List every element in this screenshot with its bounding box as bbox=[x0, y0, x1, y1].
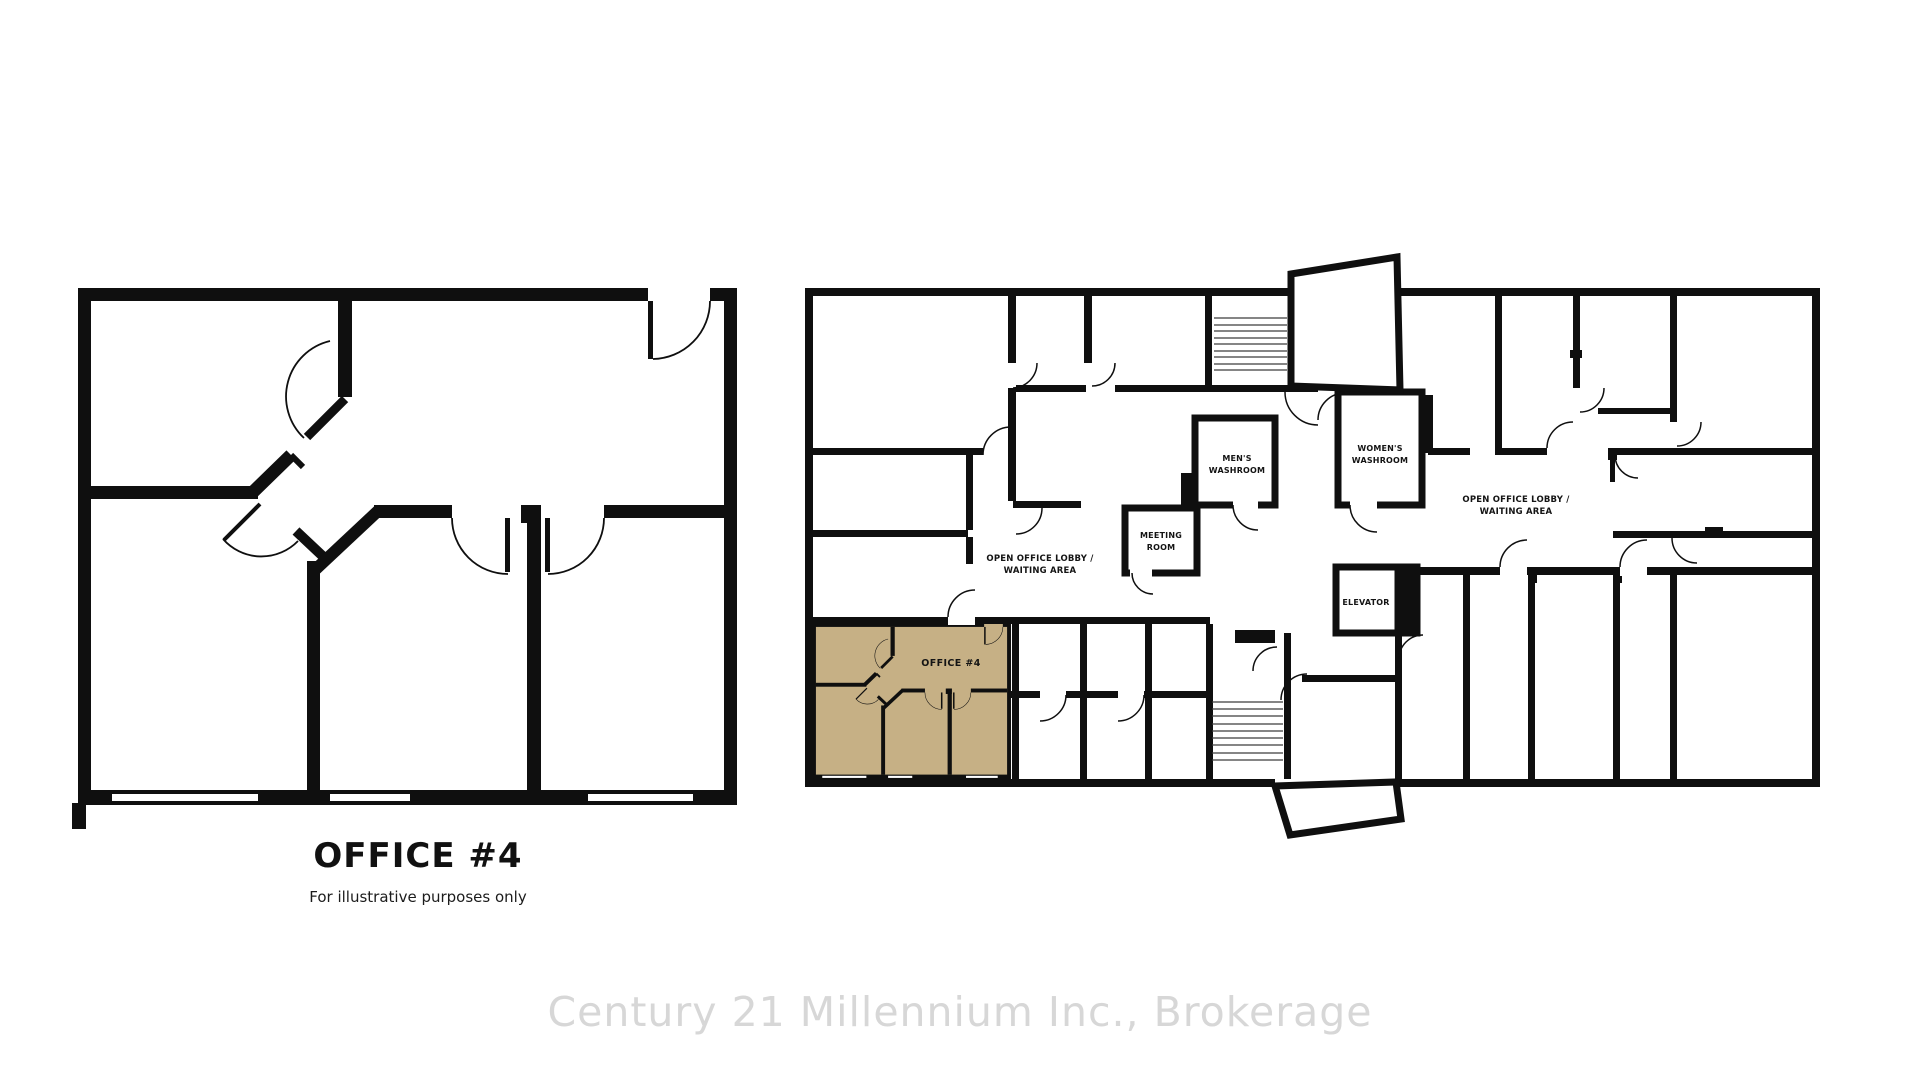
open-office-right-label-1: OPEN OFFICE LOBBY / bbox=[1462, 495, 1570, 505]
door-arc-corridor bbox=[1615, 455, 1638, 478]
office4-unit-plan bbox=[60, 280, 750, 835]
wall-h7 bbox=[1302, 675, 1396, 682]
wall-band-v2 bbox=[1080, 624, 1087, 779]
building-floor-plan: MEN'S WASHROOM WOMEN'S WASHROOM MEETING … bbox=[800, 250, 1830, 850]
vestibule-top bbox=[1291, 257, 1400, 390]
door-gap-band-b bbox=[1118, 690, 1144, 699]
wall-h1b-a bbox=[1428, 448, 1470, 455]
building-door-arcs bbox=[948, 363, 1701, 721]
door-gap-band2-a bbox=[1500, 566, 1527, 576]
door-arc-band2-b bbox=[1620, 540, 1647, 567]
wall-v4 bbox=[1670, 296, 1677, 422]
door-arc-v2 bbox=[1092, 363, 1115, 386]
wall-top-left bbox=[805, 288, 1291, 296]
stair-treads bbox=[1212, 318, 1287, 760]
vestibule-bottom bbox=[1275, 782, 1401, 835]
wall-band2-v2 bbox=[1528, 575, 1535, 779]
door-arc-h3 bbox=[1672, 538, 1697, 563]
wall-v1-upper bbox=[1008, 296, 1016, 363]
wall-band-v4 bbox=[1206, 624, 1213, 779]
door-arc-v4 bbox=[1677, 422, 1701, 446]
wall-v3 bbox=[1573, 296, 1580, 388]
door-arc-room-left bbox=[983, 427, 1011, 455]
wall-band2-v4 bbox=[1670, 575, 1677, 779]
door-gap-mens bbox=[1233, 500, 1258, 509]
wall-h2-left bbox=[813, 530, 968, 537]
shaft-block-stairs bbox=[1235, 630, 1275, 643]
wall-h5 bbox=[1011, 617, 1210, 624]
wall-band2-v1 bbox=[1463, 575, 1470, 779]
door-arc-v1b bbox=[1016, 508, 1042, 534]
wall-bottom-right bbox=[1396, 779, 1820, 787]
wall-right bbox=[1812, 288, 1820, 787]
floorplan-page: OFFICE #4 For illustrative purposes only bbox=[0, 0, 1920, 1080]
page-title: OFFICE #4 bbox=[78, 836, 758, 876]
wall-office4-top bbox=[805, 617, 1011, 624]
wall-stair-top-left bbox=[1205, 296, 1212, 392]
door-gap-office4 bbox=[948, 616, 975, 625]
meeting-room-label-1: MEETING bbox=[1140, 531, 1182, 540]
wall-top-right bbox=[1399, 288, 1820, 296]
office4-highlight bbox=[812, 623, 1011, 779]
door-gap-womens bbox=[1350, 500, 1377, 509]
meeting-room-label-2: ROOM bbox=[1147, 543, 1176, 552]
wall-room-left-a bbox=[966, 454, 973, 530]
mens-washroom-label-1: MEN'S bbox=[1222, 454, 1251, 463]
wall-room-left-b bbox=[966, 537, 973, 564]
wall-h3-b bbox=[1723, 531, 1812, 538]
door-arc-office4-entry bbox=[948, 590, 975, 617]
open-office-right-label-2: WAITING AREA bbox=[1480, 507, 1553, 517]
wall-stair-bot-right bbox=[1284, 633, 1291, 779]
wall-vestibule bbox=[1395, 633, 1402, 779]
door-gap-band-a bbox=[1040, 690, 1066, 699]
wall-meeting-left bbox=[1013, 501, 1081, 508]
open-office-left-label-1: OPEN OFFICE LOBBY / bbox=[986, 554, 1094, 564]
wall-h1-left bbox=[813, 448, 983, 455]
stairs-lower bbox=[1212, 702, 1283, 760]
wall-v3-notch bbox=[1570, 350, 1582, 358]
door-arc-stairbot-a bbox=[1253, 647, 1277, 671]
mens-washroom-label-2: WASHROOM bbox=[1209, 466, 1265, 475]
door-arc-v1a bbox=[1013, 363, 1037, 388]
office4-unit-label: OFFICE #4 bbox=[921, 658, 981, 669]
open-office-left-label-2: WAITING AREA bbox=[1004, 566, 1077, 576]
door-gaps bbox=[948, 566, 1647, 699]
wall-h1c bbox=[1610, 448, 1812, 455]
wall-h3-a bbox=[1613, 531, 1705, 538]
door-gap-meeting bbox=[1130, 569, 1152, 577]
door-arc-h1b bbox=[1547, 422, 1573, 448]
wall-band-v3 bbox=[1145, 624, 1152, 779]
wall-bottom-left bbox=[805, 779, 1275, 787]
brokerage-watermark-text: Century 21 Millennium Inc., Brokerage bbox=[548, 988, 1373, 1036]
wall-h3-jog bbox=[1705, 527, 1723, 538]
womens-washroom-label-1: WOMEN'S bbox=[1357, 444, 1402, 453]
stairs-upper bbox=[1214, 318, 1287, 370]
shaft-block-elevator bbox=[1398, 568, 1417, 632]
door-gap-band2-b bbox=[1620, 566, 1647, 576]
wall-v5 bbox=[1495, 296, 1502, 448]
elevator-label: ELEVATOR bbox=[1342, 598, 1389, 607]
wall-subdivider bbox=[1598, 408, 1670, 414]
wall-v2 bbox=[1084, 296, 1092, 363]
wall-left bbox=[805, 288, 813, 787]
door-arc-elevator-lobby bbox=[1399, 635, 1423, 659]
door-arc-band2-a bbox=[1500, 540, 1527, 567]
wall-band2-v3 bbox=[1613, 575, 1620, 779]
room-outlines bbox=[1125, 392, 1422, 633]
wall-stub-right bbox=[1610, 455, 1615, 482]
meeting-room-outline bbox=[1125, 508, 1197, 573]
wall-v1-lower bbox=[1008, 388, 1016, 501]
door-arc-stairtop-a bbox=[1285, 392, 1318, 425]
vestibules bbox=[1275, 257, 1401, 835]
door-arc-womens bbox=[1350, 505, 1377, 532]
womens-washroom-label-2: WASHROOM bbox=[1352, 456, 1408, 465]
wall-band-v1 bbox=[1012, 624, 1019, 779]
wall-h4 bbox=[1417, 567, 1812, 575]
wall-corridor-a bbox=[1016, 385, 1086, 392]
brokerage-watermark: Century 21 Millennium Inc., Brokerage bbox=[0, 988, 1920, 1036]
office4-unit-plan-use bbox=[72, 288, 737, 829]
page-subtitle: For illustrative purposes only bbox=[78, 888, 758, 906]
wall-corridor-b bbox=[1115, 385, 1212, 392]
wall-h1b-b bbox=[1495, 448, 1547, 455]
